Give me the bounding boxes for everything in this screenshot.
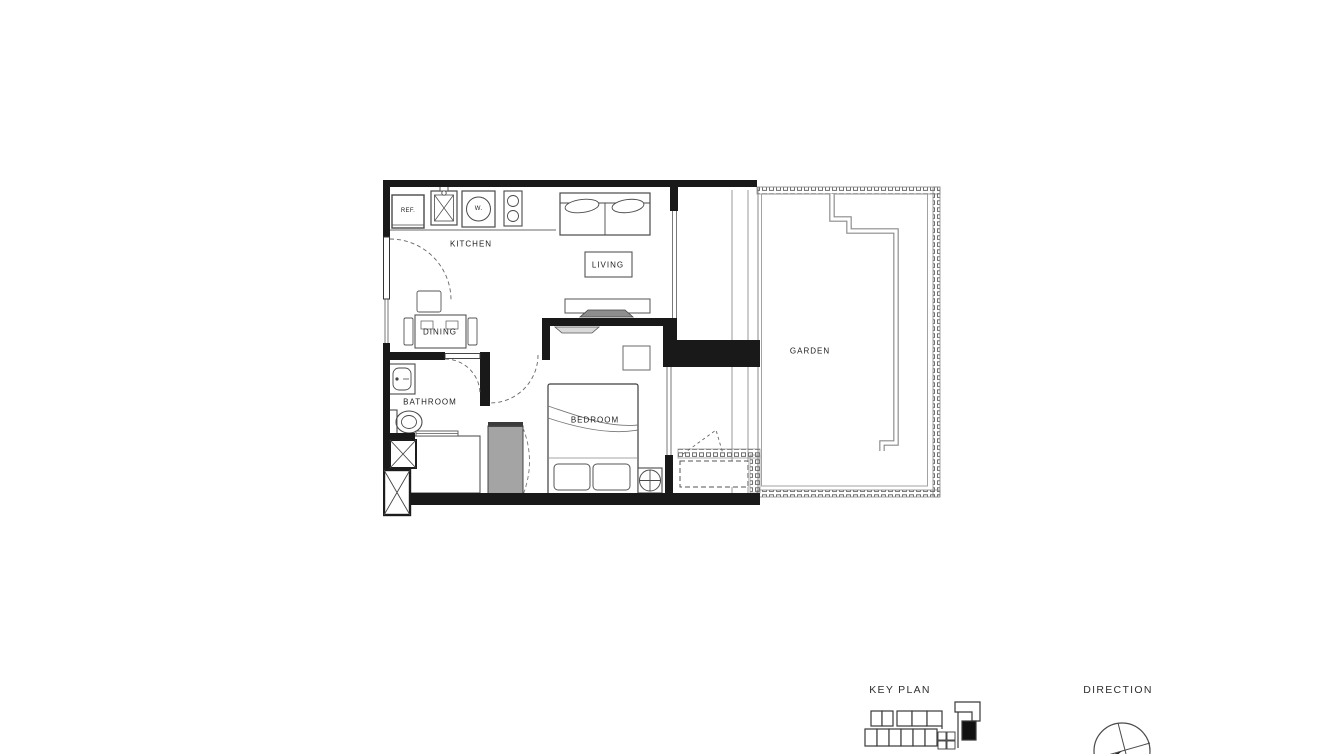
floor-plan: KITCHEN LIVING DINING BATHROOM BEDROOM G… <box>383 178 943 523</box>
pillow-left <box>554 464 590 490</box>
kitchen-sink-icon <box>431 186 457 225</box>
key-plan-highlighted-unit <box>962 721 976 740</box>
wardrobe <box>488 422 530 497</box>
toilet-icon <box>388 410 422 434</box>
bathroom-sink-icon <box>388 364 415 394</box>
room-label-living: LIVING <box>592 261 624 270</box>
garden-inner-outline <box>762 194 928 486</box>
appliance-label-refrigerator: REF. <box>401 208 415 214</box>
key-plan <box>858 696 993 754</box>
dining-chair-right <box>468 318 477 345</box>
stove-icon <box>504 191 522 226</box>
appliance-label-washer: W. <box>475 206 483 212</box>
room-label-dining: DINING <box>423 328 457 337</box>
room-label-kitchen: KITCHEN <box>450 240 492 249</box>
side-table <box>638 468 662 493</box>
page: KITCHEN LIVING DINING BATHROOM BEDROOM G… <box>0 0 1342 754</box>
shaft-upper <box>390 440 416 468</box>
garden-path <box>832 194 896 451</box>
room-label-garden: GARDEN <box>790 347 830 356</box>
dining-chair-left <box>404 318 413 345</box>
sofa <box>560 193 650 235</box>
direction-label: DIRECTION <box>1083 684 1152 696</box>
shaft-lower <box>384 470 410 515</box>
room-label-bedroom: BEDROOM <box>571 416 619 425</box>
tv-console <box>555 299 650 333</box>
tv-icon <box>580 310 633 317</box>
compass <box>1080 705 1165 754</box>
bedroom-stool <box>623 346 650 370</box>
bedroom-door <box>490 355 538 403</box>
shower-room <box>410 431 480 493</box>
bathroom-door <box>445 354 480 395</box>
compass-drawing <box>1080 705 1165 754</box>
bed <box>548 384 638 497</box>
pillow-right <box>593 464 630 490</box>
window-bedroom <box>665 367 673 455</box>
tv-icon-bedroom <box>555 327 599 333</box>
entrance-door <box>384 237 452 300</box>
floor-plan-drawing <box>383 178 943 523</box>
dining-set <box>404 291 477 348</box>
key-plan-drawing <box>858 696 993 754</box>
key-plan-label: KEY PLAN <box>869 684 931 696</box>
window-entry-side <box>383 298 390 343</box>
garden-area <box>757 187 940 497</box>
room-label-bathroom: BATHROOM <box>403 398 457 407</box>
dining-chair-top <box>417 291 441 312</box>
